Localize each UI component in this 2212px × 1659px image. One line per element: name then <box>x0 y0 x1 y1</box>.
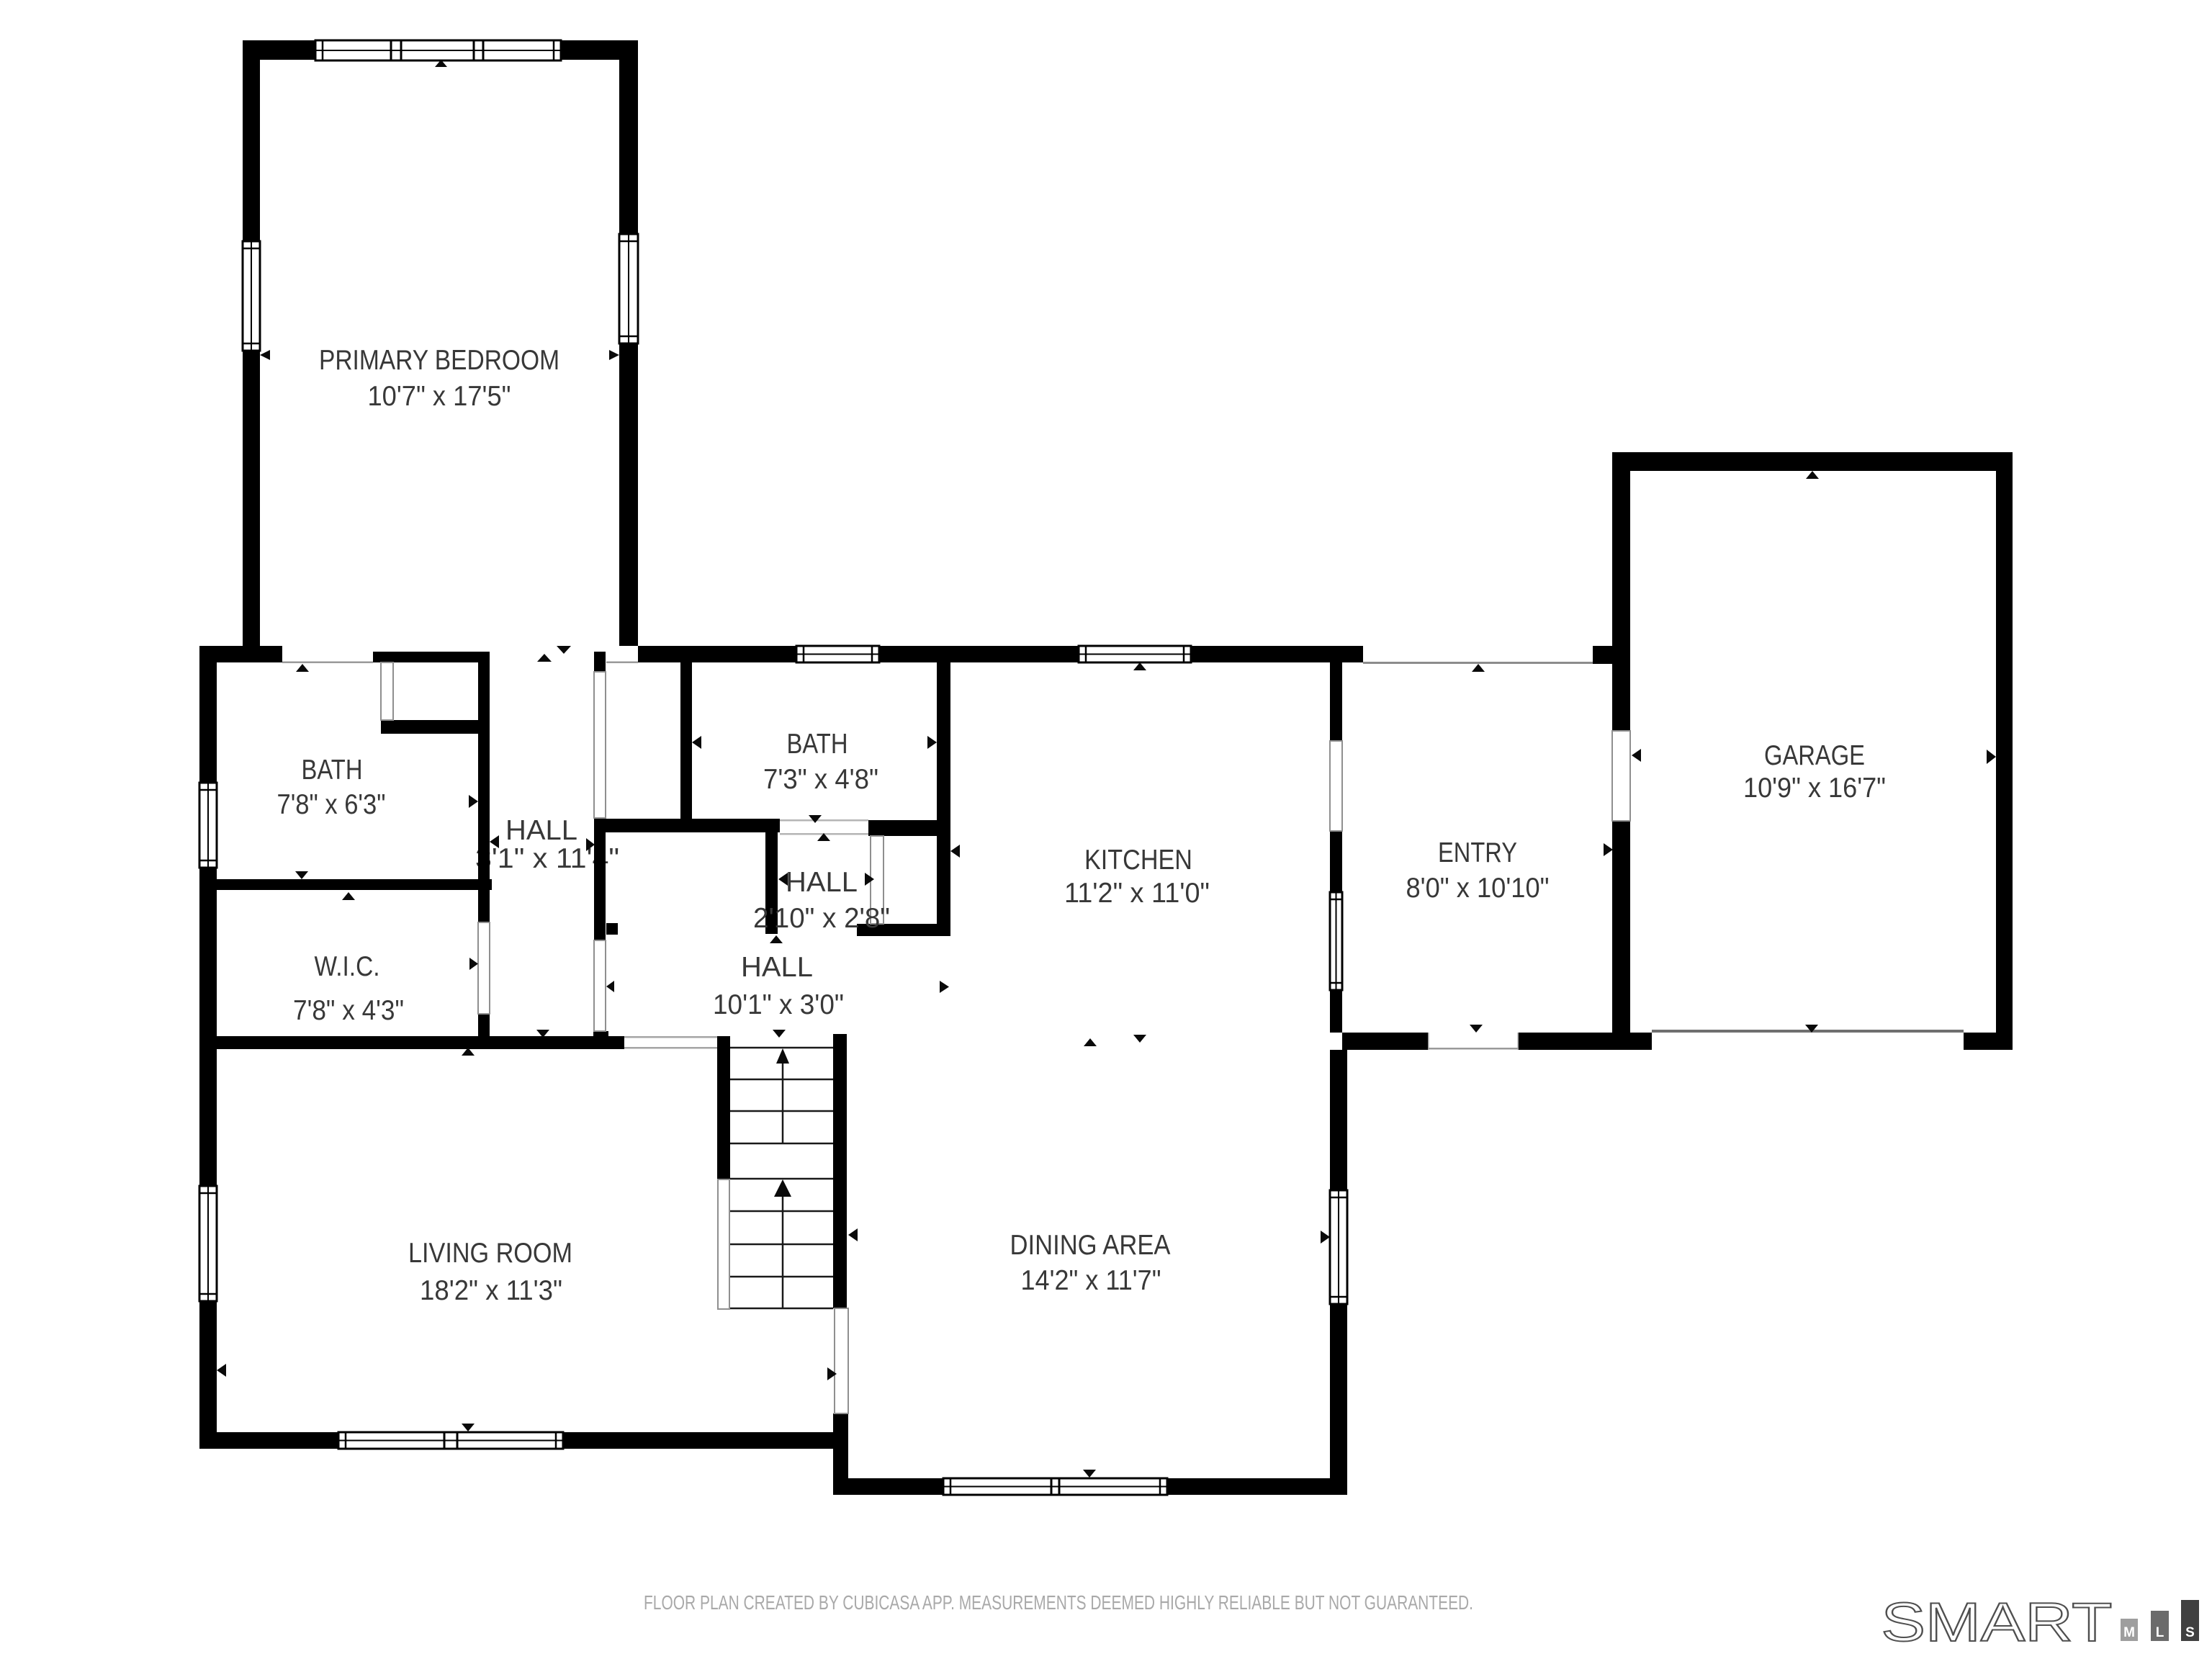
svg-text:LIVING ROOM: LIVING ROOM <box>408 1238 572 1269</box>
svg-text:7'8" x 6'3": 7'8" x 6'3" <box>277 789 386 820</box>
svg-text:DINING AREA: DINING AREA <box>1010 1230 1171 1261</box>
svg-text:KITCHEN: KITCHEN <box>1084 845 1192 876</box>
svg-text:BATH: BATH <box>302 755 363 786</box>
svg-text:HALL: HALL <box>505 815 577 846</box>
svg-text:GARAGE: GARAGE <box>1764 740 1865 771</box>
svg-text:FLOOR PLAN CREATED BY CUBICASA: FLOOR PLAN CREATED BY CUBICASA APP. MEAS… <box>644 1591 1473 1614</box>
svg-text:2'10" x 2'8": 2'10" x 2'8" <box>753 903 890 934</box>
svg-text:L: L <box>2156 1625 2164 1640</box>
svg-text:PRIMARY BEDROOM: PRIMARY BEDROOM <box>319 345 559 376</box>
svg-text:BATH: BATH <box>787 729 848 760</box>
svg-text:14'2" x 11'7": 14'2" x 11'7" <box>1021 1265 1161 1296</box>
svg-text:HALL: HALL <box>741 952 813 983</box>
svg-text:10'1" x 3'0": 10'1" x 3'0" <box>713 989 844 1020</box>
svg-text:11'2" x 11'0": 11'2" x 11'0" <box>1064 878 1210 909</box>
svg-text:10'9" x 16'7": 10'9" x 16'7" <box>1743 773 1886 804</box>
svg-text:HALL: HALL <box>786 867 858 898</box>
svg-text:7'8" x 4'3": 7'8" x 4'3" <box>293 995 404 1026</box>
svg-text:8'0" x 10'10": 8'0" x 10'10" <box>1406 873 1550 904</box>
svg-text:ENTRY: ENTRY <box>1438 837 1517 868</box>
svg-text:W.I.C.: W.I.C. <box>315 951 380 982</box>
svg-text:10'7" x 17'5": 10'7" x 17'5" <box>368 381 511 412</box>
svg-text:18'2" x 11'3": 18'2" x 11'3" <box>420 1275 562 1306</box>
svg-text:M: M <box>2123 1625 2135 1640</box>
svg-text:S: S <box>2185 1625 2195 1640</box>
svg-text:SMART: SMART <box>1881 1592 2113 1653</box>
svg-text:7'3" x 4'8": 7'3" x 4'8" <box>763 764 878 795</box>
